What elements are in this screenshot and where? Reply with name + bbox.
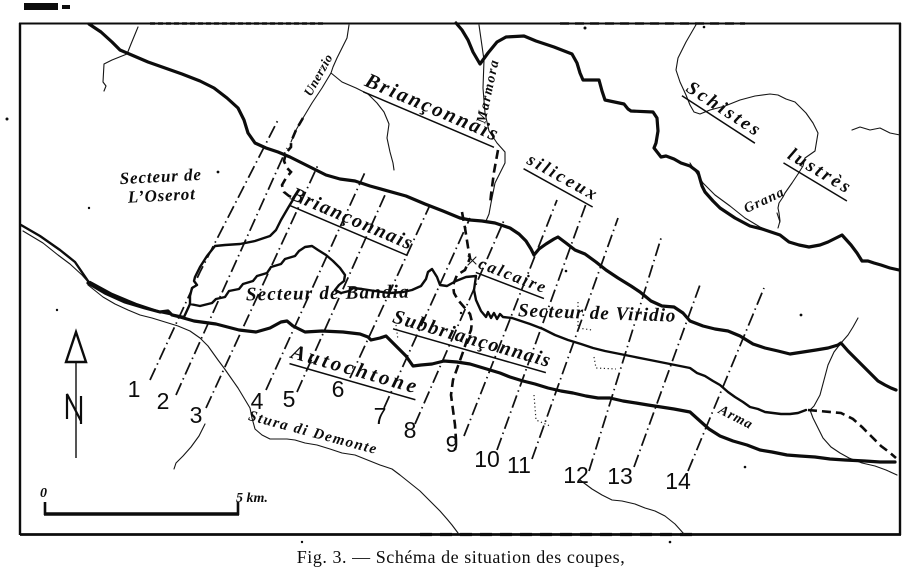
svg-text:0: 0	[40, 486, 47, 501]
svg-text:L’Oserot: L’Oserot	[126, 184, 196, 207]
svg-text:6: 6	[332, 376, 345, 402]
svg-text:13: 13	[607, 463, 633, 489]
svg-text:9: 9	[446, 431, 459, 457]
svg-text:Secteur de Bandia: Secteur de Bandia	[246, 282, 410, 306]
svg-text:7: 7	[374, 403, 387, 429]
svg-text:8: 8	[404, 417, 417, 443]
svg-text:12: 12	[563, 462, 589, 488]
svg-text:1: 1	[128, 376, 141, 402]
svg-text:4: 4	[251, 388, 264, 414]
svg-text:11: 11	[507, 452, 531, 478]
svg-text:5: 5	[283, 386, 296, 412]
svg-text:14: 14	[665, 468, 691, 494]
svg-text:2: 2	[157, 388, 170, 414]
svg-text:5 km.: 5 km.	[236, 491, 268, 506]
svg-text:Fig. 3. — Schéma de situation: Fig. 3. — Schéma de situation des coupes…	[297, 547, 626, 567]
svg-text:3: 3	[190, 402, 203, 428]
svg-text:10: 10	[474, 446, 500, 472]
